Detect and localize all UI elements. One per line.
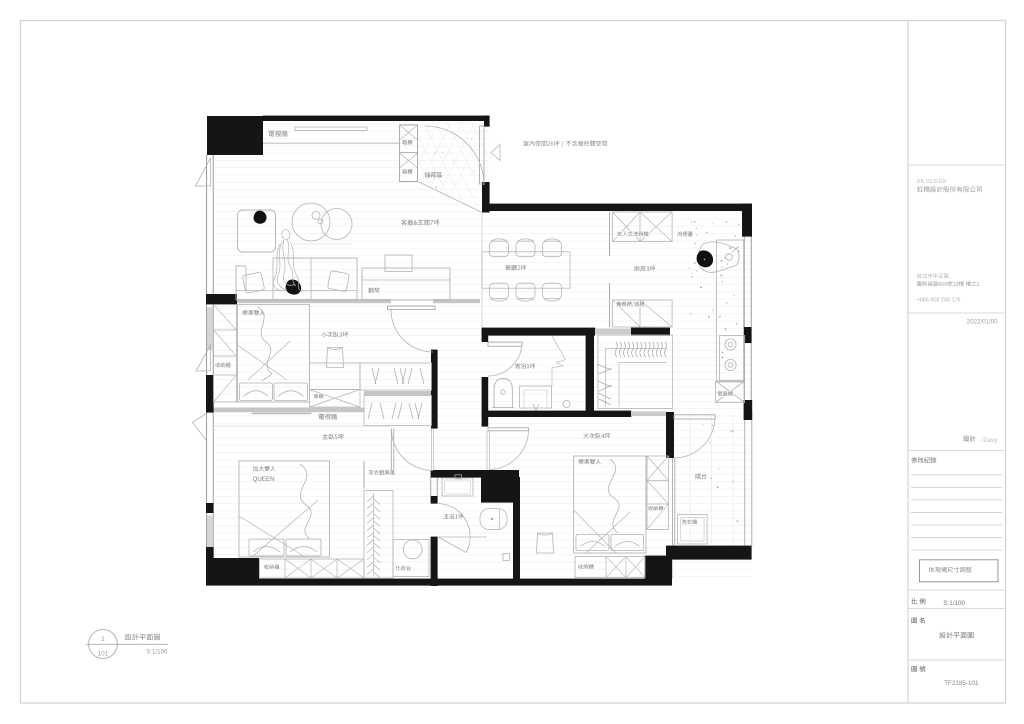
svg-text:+886-908 208 176: +886-908 208 176	[917, 298, 961, 304]
svg-text:RB DESIGN: RB DESIGN	[917, 179, 947, 185]
svg-text:1: 1	[101, 636, 105, 643]
svg-text:TF2185-101: TF2185-101	[944, 680, 979, 687]
svg-text:2022/01/00: 2022/01/00	[967, 319, 999, 326]
svg-text:QUEEN: QUEEN	[253, 476, 275, 483]
svg-text:101: 101	[98, 651, 109, 658]
svg-text:S:1/100: S:1/100	[146, 648, 168, 655]
svg-text:· Davy: · Davy	[980, 437, 999, 444]
svg-text:S:1/100: S:1/100	[943, 600, 965, 607]
